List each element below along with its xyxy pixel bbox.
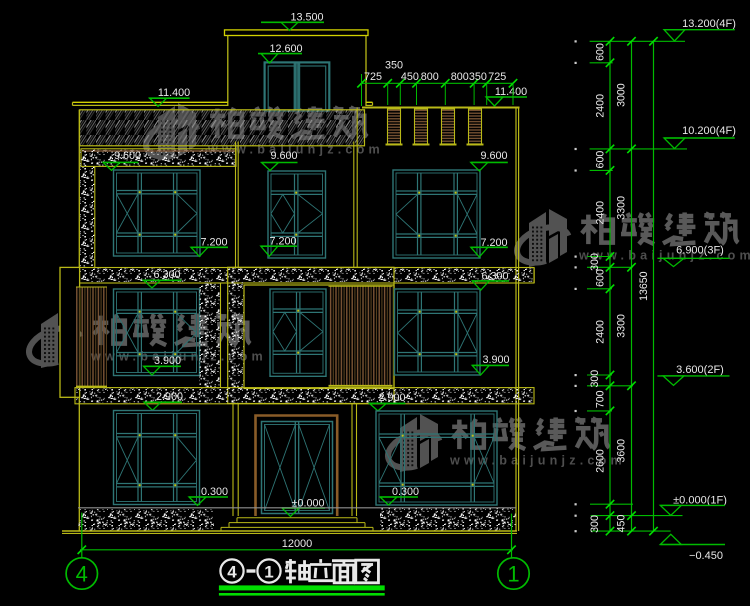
svg-text:7.200: 7.200 (269, 236, 296, 248)
svg-text:300: 300 (589, 370, 601, 388)
svg-text:2400: 2400 (595, 94, 607, 118)
svg-text:2.900: 2.900 (378, 392, 405, 404)
svg-text:3000: 3000 (616, 83, 628, 107)
svg-text:450: 450 (401, 71, 419, 83)
svg-text:6.900(3F): 6.900(3F) (676, 245, 724, 257)
svg-text:−0.450: −0.450 (689, 550, 723, 562)
svg-text:11.400: 11.400 (158, 87, 190, 99)
svg-text:12.600: 12.600 (269, 43, 302, 55)
svg-text:2.900: 2.900 (156, 391, 183, 403)
svg-text:3.600(2F): 3.600(2F) (676, 364, 724, 376)
svg-text:350: 350 (469, 71, 487, 83)
svg-text:10.200(4F): 10.200(4F) (682, 125, 736, 137)
svg-text:2400: 2400 (595, 320, 607, 344)
svg-text:3600: 3600 (616, 439, 628, 463)
svg-text:www.baijunjz.com: www.baijunjz.com (578, 249, 750, 263)
svg-text:1: 1 (507, 562, 519, 587)
svg-text:7.200: 7.200 (480, 237, 507, 249)
svg-text:4: 4 (227, 563, 237, 582)
svg-text:0.300: 0.300 (201, 486, 228, 498)
svg-text:600: 600 (595, 151, 607, 169)
svg-text:600: 600 (595, 269, 607, 287)
svg-text:13650: 13650 (638, 271, 650, 301)
svg-text:9.600: 9.600 (270, 150, 297, 162)
svg-text:3.900: 3.900 (154, 355, 181, 367)
svg-text:800: 800 (421, 71, 439, 83)
svg-text:13.500: 13.500 (290, 12, 323, 24)
svg-text:600: 600 (595, 43, 607, 61)
svg-text:725: 725 (488, 71, 506, 83)
svg-text:2400: 2400 (595, 201, 607, 225)
svg-text:±0.000(1F): ±0.000(1F) (673, 494, 727, 506)
svg-text:2600: 2600 (595, 449, 607, 473)
svg-text:350: 350 (385, 60, 403, 72)
svg-text:9.600: 9.600 (480, 150, 507, 162)
svg-text:3300: 3300 (616, 314, 628, 338)
svg-text:700: 700 (595, 390, 607, 408)
svg-text:3.900: 3.900 (482, 354, 509, 366)
svg-text:300: 300 (589, 253, 601, 271)
svg-text:300: 300 (589, 515, 601, 533)
svg-text:3300: 3300 (616, 196, 628, 220)
svg-text:6.300: 6.300 (481, 270, 508, 282)
svg-text:800: 800 (451, 71, 469, 83)
svg-text:11.400: 11.400 (495, 86, 527, 98)
svg-text:4: 4 (76, 562, 88, 587)
svg-text:12000: 12000 (282, 538, 313, 550)
svg-text:13.200(4F): 13.200(4F) (682, 18, 736, 30)
svg-text:0.300: 0.300 (392, 486, 419, 498)
svg-text:7.200: 7.200 (200, 237, 227, 249)
svg-text:725: 725 (364, 71, 382, 83)
svg-text:450: 450 (616, 515, 628, 533)
svg-text:6.300: 6.300 (153, 269, 180, 281)
svg-text:9.600: 9.600 (114, 150, 141, 162)
svg-text:1: 1 (264, 563, 273, 582)
